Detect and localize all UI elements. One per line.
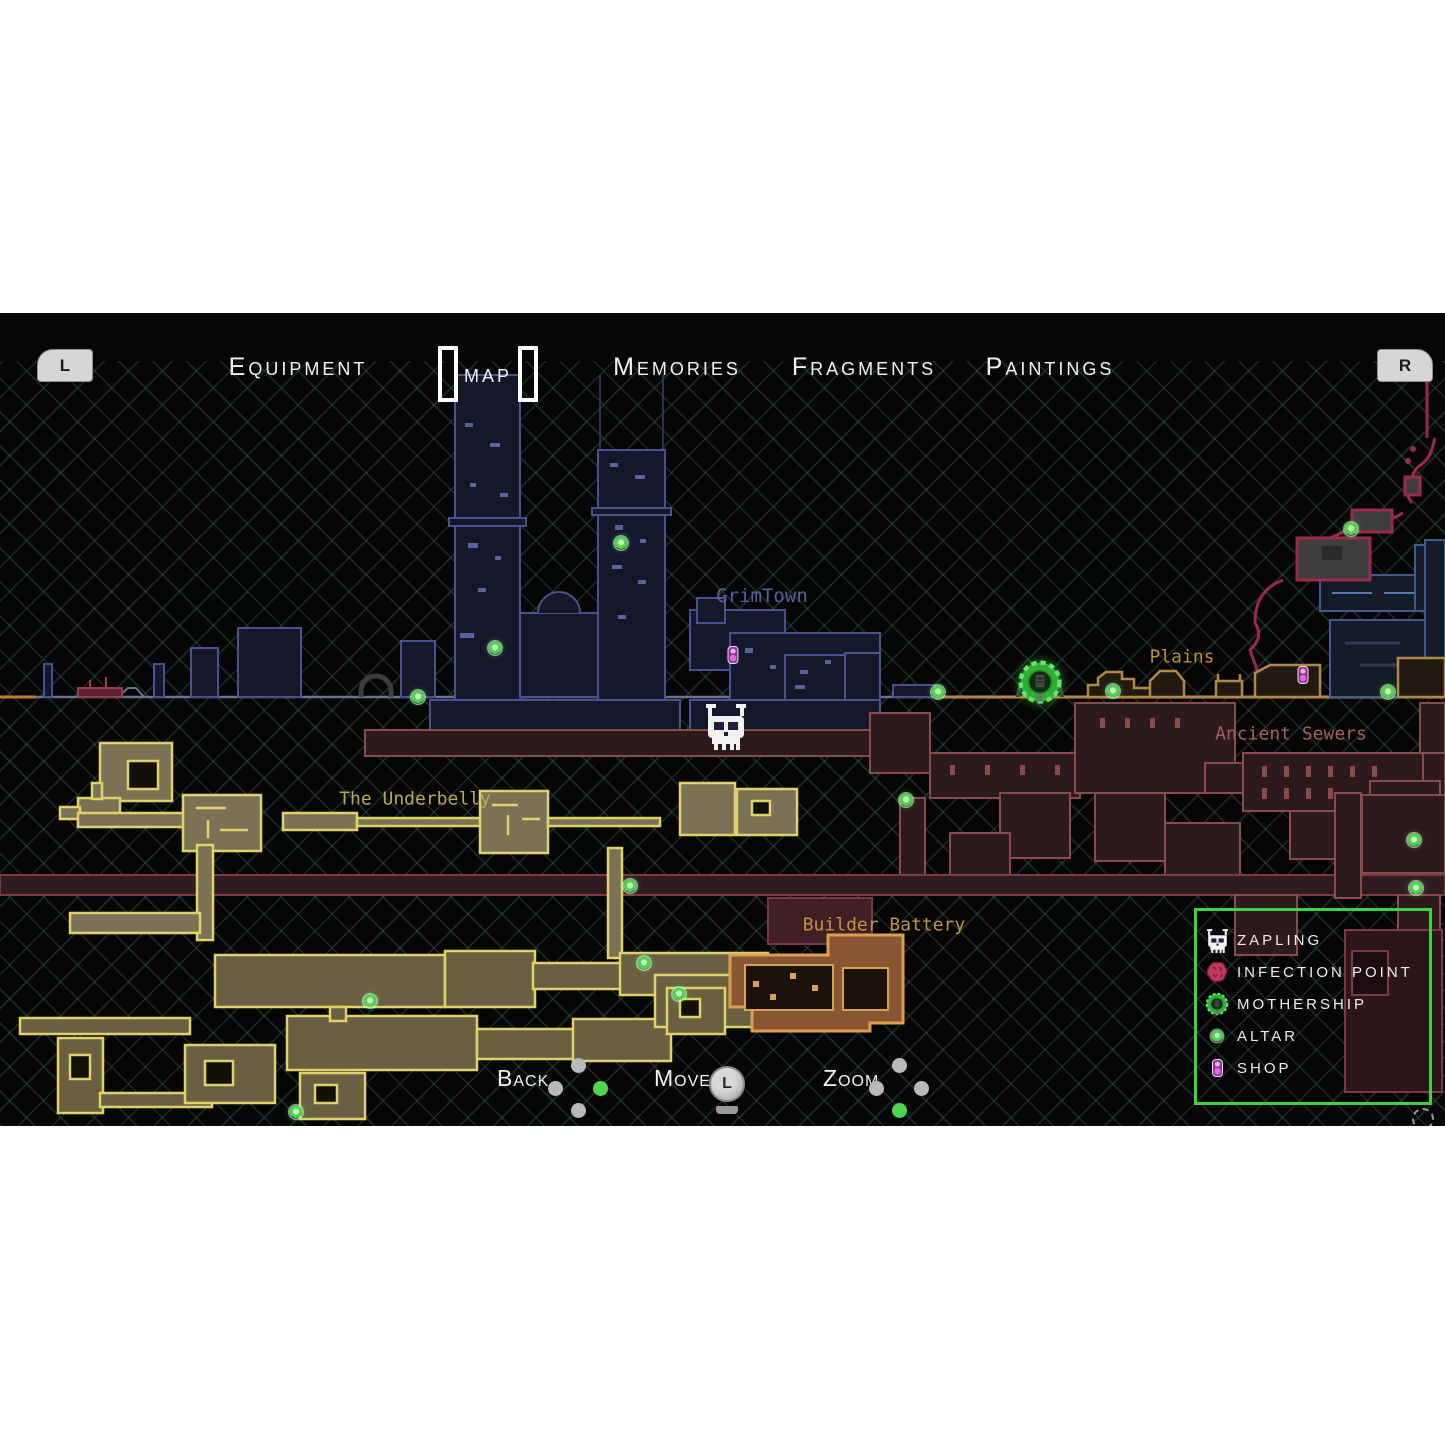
tab-map-label: Map	[464, 360, 512, 389]
area-label-ancient-sewers: Ancient Sewers	[1215, 724, 1367, 745]
underbelly-lower-region	[20, 951, 775, 1119]
legend-row-infection-point: INFECTION POINT	[1197, 956, 1429, 988]
tab-paintings[interactable]: Paintings	[986, 353, 1115, 382]
back-dpad-icon[interactable]	[546, 1056, 610, 1120]
infection-point-icon	[1197, 960, 1237, 984]
tab-memories[interactable]: Memories	[613, 353, 741, 382]
screenshot-page: L R Equipment Map Memories Fragments Pai…	[0, 0, 1445, 1445]
tab-fragments[interactable]: Fragments	[792, 353, 936, 382]
back-control-label: Back	[497, 1065, 549, 1092]
legend-row-shop: SHOP	[1197, 1052, 1429, 1084]
move-control-label: Move	[654, 1065, 711, 1092]
legend-label: SHOP	[1237, 1060, 1292, 1077]
legend-row-altar: ALTAR	[1197, 1020, 1429, 1052]
tab-equipment[interactable]: Equipment	[229, 353, 368, 382]
legend-label: ALTAR	[1237, 1028, 1298, 1045]
area-label-the-underbelly: The Underbelly	[339, 789, 491, 810]
legend-label: ZAPLING	[1237, 932, 1322, 949]
game-screen: L R Equipment Map Memories Fragments Pai…	[0, 313, 1445, 1126]
map-legend: ZAPLING INFECTION POINT MOTHERSHIP ALTAR…	[1194, 908, 1432, 1105]
grimtown-region	[44, 375, 935, 751]
legend-row-mothership: MOTHERSHIP	[1197, 988, 1429, 1020]
legend-label: INFECTION POINT	[1237, 964, 1413, 981]
area-label-plains: Plains	[1149, 647, 1214, 668]
tab-map[interactable]: Map	[438, 346, 538, 402]
selected-bracket-left-icon	[438, 346, 458, 402]
builder-battery-region	[730, 935, 903, 1031]
area-label-builder-battery: Builder Battery	[803, 915, 966, 936]
shop-icon	[1197, 1059, 1237, 1077]
area-label-grimtown: GrimTown	[716, 585, 808, 607]
legend-label: MOTHERSHIP	[1237, 996, 1367, 1013]
left-stick-icon[interactable]: L	[707, 1066, 747, 1114]
legend-row-zapling: ZAPLING	[1197, 924, 1429, 956]
left-stick-letter: L	[709, 1066, 745, 1102]
underbelly-region	[60, 743, 797, 958]
selected-bracket-right-icon	[518, 346, 538, 402]
autosave-spinner-icon	[1412, 1108, 1434, 1126]
left-bumper-button[interactable]: L	[37, 349, 93, 382]
zoom-dpad-icon[interactable]	[867, 1056, 931, 1120]
altar-icon	[1197, 1030, 1237, 1042]
mothership-icon	[1197, 992, 1237, 1016]
zapling-icon	[1197, 927, 1237, 954]
right-bumper-button[interactable]: R	[1377, 349, 1433, 382]
